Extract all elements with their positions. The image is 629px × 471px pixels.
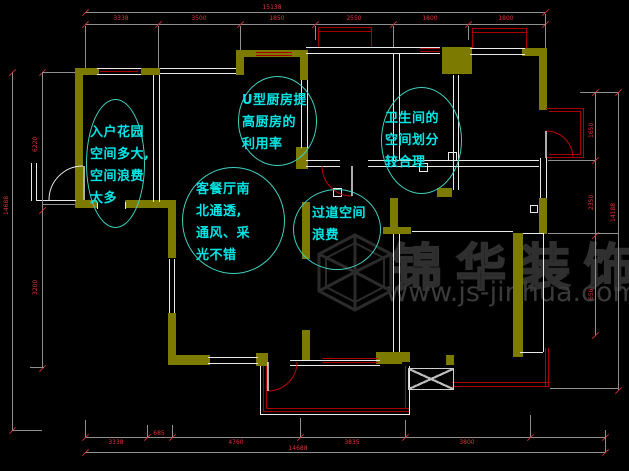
dim-ext <box>580 92 618 93</box>
dim-label: 14688 <box>281 446 315 452</box>
annotation-line: 利用率 <box>242 134 307 156</box>
dim-ext <box>548 160 595 161</box>
dim-label: 4760 <box>219 440 253 446</box>
dim-ext <box>530 415 531 437</box>
dim-line-top-total <box>85 12 545 13</box>
annotation-line: U型厨房提 <box>242 90 307 112</box>
dim-label: 15138 <box>255 5 289 11</box>
dim-label: 1800 <box>413 16 447 22</box>
dim-label: 6220 <box>33 137 39 152</box>
dim-label: 1650 <box>589 123 595 138</box>
annotation-line: 通风、采 <box>196 223 250 245</box>
dim-label: 3200 <box>33 280 39 295</box>
dim-label: 2350 <box>589 195 595 210</box>
dim-label: 3338 <box>104 16 138 22</box>
dim-ext <box>147 425 148 437</box>
porch-door-arc <box>546 131 573 158</box>
dim-label: 3800 <box>450 440 484 446</box>
dim-ext <box>468 26 469 40</box>
annotation-line: 空间浪费 <box>90 166 149 188</box>
dim-line-left-segments <box>42 72 43 368</box>
dim-ext <box>405 420 406 437</box>
annotation-line: 客餐厅南 <box>196 179 250 201</box>
annotation-line: 卫生间的 <box>385 108 439 130</box>
dim-label: 1850 <box>260 16 294 22</box>
floor-plan-canvas: 锦华装饰 www.js-jinhua.com <box>0 0 629 471</box>
dim-label: 3338 <box>99 440 133 446</box>
annotation-line: 入户花园 <box>90 122 149 144</box>
dim-ext <box>548 233 618 234</box>
dim-line-bottom-segments <box>85 437 605 438</box>
annotation-line: 空间多大, <box>90 144 149 166</box>
entry-door-arc <box>49 166 83 200</box>
dim-ext <box>85 420 86 437</box>
dim-ext <box>42 72 75 73</box>
dim-ext <box>550 388 618 389</box>
dim-ext <box>545 14 546 48</box>
dim-ext <box>172 425 173 437</box>
dim-ext <box>12 430 42 431</box>
dim-label: 14688 <box>4 196 10 215</box>
annotation-corridor: 过道空间 浪费 <box>312 203 366 247</box>
dim-ext <box>30 367 44 368</box>
annotation-living-dining: 客餐厅南 北通透, 通风、采 光不错 <box>196 179 250 267</box>
annotation-bathroom: 卫生间的 空间划分 较合理 <box>385 108 439 174</box>
dim-ext <box>300 418 301 437</box>
dim-ext <box>158 26 159 68</box>
annotation-line: 太多 <box>90 188 149 210</box>
dim-ext <box>42 204 75 205</box>
dim-label: 3500 <box>182 16 216 22</box>
annotation-entry-garden: 入户花园 空间多大, 空间浪费 太多 <box>90 122 149 210</box>
dim-ext <box>605 430 606 452</box>
annotation-line: 空间划分 <box>385 130 439 152</box>
annotation-line: 过道空间 <box>312 203 366 225</box>
annotation-line: 光不错 <box>196 245 250 267</box>
annotation-line: 较合理 <box>385 152 439 174</box>
dim-label: 3835 <box>335 440 369 446</box>
dim-line-right-total <box>618 92 619 390</box>
annotation-line: 高厨房的 <box>242 112 307 134</box>
dim-label: 2550 <box>337 16 371 22</box>
dim-label: 650 <box>589 289 595 300</box>
balcony-door-arc <box>268 362 297 391</box>
dim-ext <box>240 26 241 50</box>
dim-ext <box>85 26 86 68</box>
dim-label: 14188 <box>611 203 617 222</box>
annotation-line: 北通透, <box>196 201 250 223</box>
dim-line-left-total <box>12 72 13 430</box>
dim-line-bottom-total <box>85 452 605 453</box>
annotation-line: 浪费 <box>312 225 366 247</box>
dim-line-right-segments <box>595 92 596 335</box>
dim-ext <box>315 26 316 40</box>
dim-ext <box>393 26 394 47</box>
annotation-kitchen: U型厨房提 高厨房的 利用率 <box>242 90 307 156</box>
dim-label: 1800 <box>489 16 523 22</box>
